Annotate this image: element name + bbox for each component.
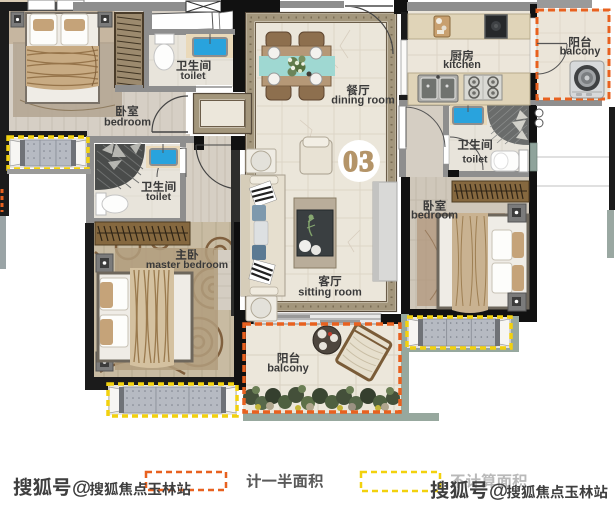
svg-text:balcony: balcony	[267, 363, 309, 375]
svg-text:dining room: dining room	[331, 95, 395, 107]
svg-text:bedroom: bedroom	[411, 210, 458, 222]
svg-text:@: @	[489, 480, 508, 502]
svg-text:balcony: balcony	[560, 46, 601, 58]
svg-text:toilet: toilet	[462, 154, 488, 166]
svg-text:sitting room: sitting room	[298, 287, 362, 299]
svg-text:03: 03	[343, 145, 375, 178]
svg-text:bedroom: bedroom	[104, 117, 151, 129]
svg-text:toilet: toilet	[180, 70, 206, 82]
svg-text:kitchen: kitchen	[443, 59, 481, 71]
svg-text:toilet: toilet	[146, 191, 172, 203]
svg-text:@: @	[72, 477, 91, 499]
svg-text:master bedroom: master bedroom	[146, 259, 228, 271]
